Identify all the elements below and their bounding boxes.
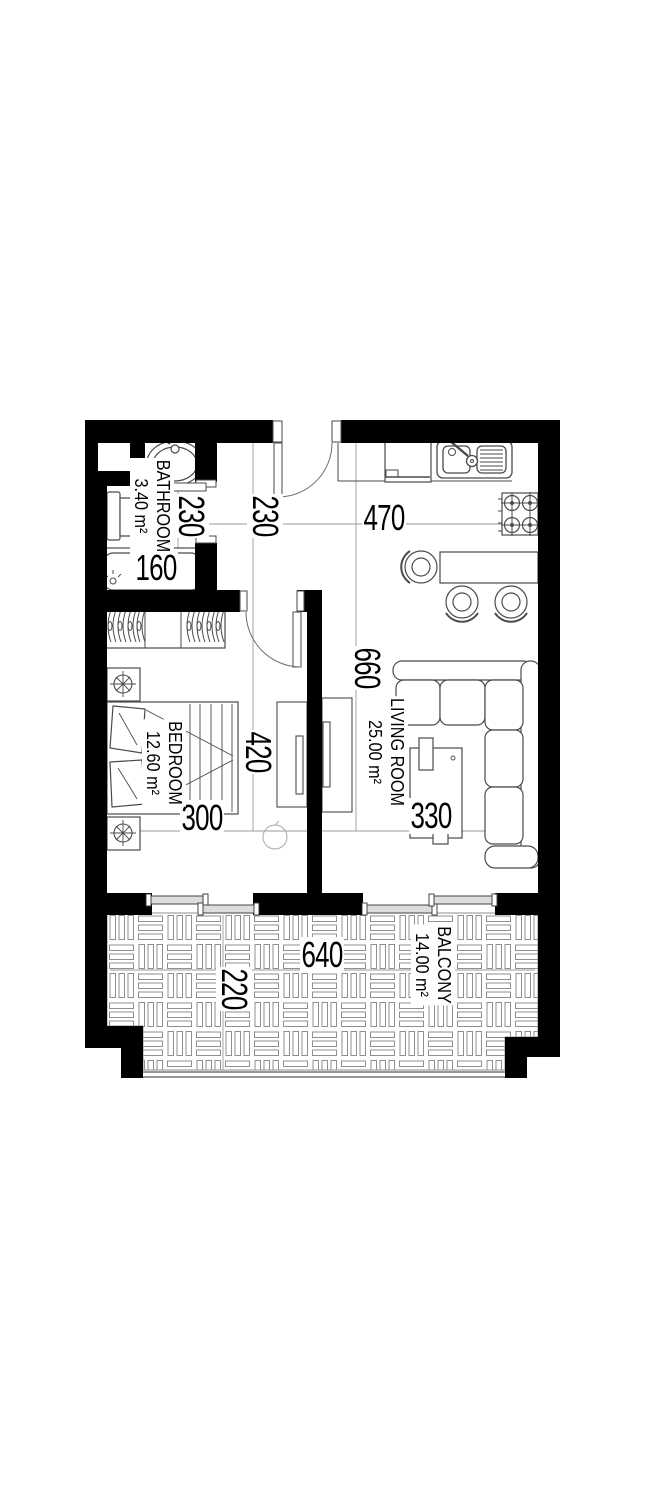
floor-plan-drawing [0, 0, 645, 1500]
room-area: 25.00 m² [364, 698, 386, 806]
kitchen-sink [437, 441, 512, 478]
room-name: BALCONY [433, 926, 455, 1003]
room-name: BATHROOM [152, 460, 174, 552]
tv-unit-bedroom [277, 702, 307, 807]
room-area: 12.60 m² [142, 721, 164, 805]
dim-living-length: 660 [349, 646, 385, 690]
dim-coffee-table: 330 [409, 798, 453, 834]
sliding-window-living [362, 894, 497, 915]
sliding-window-bedroom [146, 894, 259, 915]
dim-bed-width: 300 [180, 800, 224, 836]
room-label-balcony: BALCONY 14.00 m² [411, 924, 455, 1005]
floor-plan-page: 230 230 470 660 420 300 330 160 640 220 … [0, 0, 645, 1500]
room-label-living-room: LIVING ROOM 25.00 m² [364, 696, 408, 808]
dim-bathtub: 160 [134, 550, 178, 586]
room-label-bathroom: BATHROOM 3.40 m² [130, 458, 174, 554]
room-area: 3.40 m² [130, 460, 152, 552]
dim-bathroom-width: 230 [173, 494, 209, 538]
room-area: 14.00 m² [411, 926, 433, 1003]
tv-unit-living [322, 698, 352, 812]
duct-niche [98, 443, 130, 471]
room-name: LIVING ROOM [386, 698, 408, 806]
dim-hall-width: 230 [247, 494, 283, 538]
bedroom-door [240, 591, 304, 667]
room-name: BEDROOM [164, 721, 186, 805]
dim-bedroom-length: 420 [240, 730, 276, 774]
entry-door [273, 421, 341, 497]
dim-kitchen-width: 470 [362, 500, 406, 536]
fridge [385, 439, 431, 482]
dim-balcony-width: 640 [300, 937, 344, 973]
room-label-bedroom: BEDROOM 12.60 m² [142, 719, 186, 806]
railing [141, 1072, 505, 1077]
bar-counter [440, 552, 538, 583]
floor-lamp [263, 821, 287, 849]
dim-balcony-depth: 220 [216, 967, 252, 1011]
